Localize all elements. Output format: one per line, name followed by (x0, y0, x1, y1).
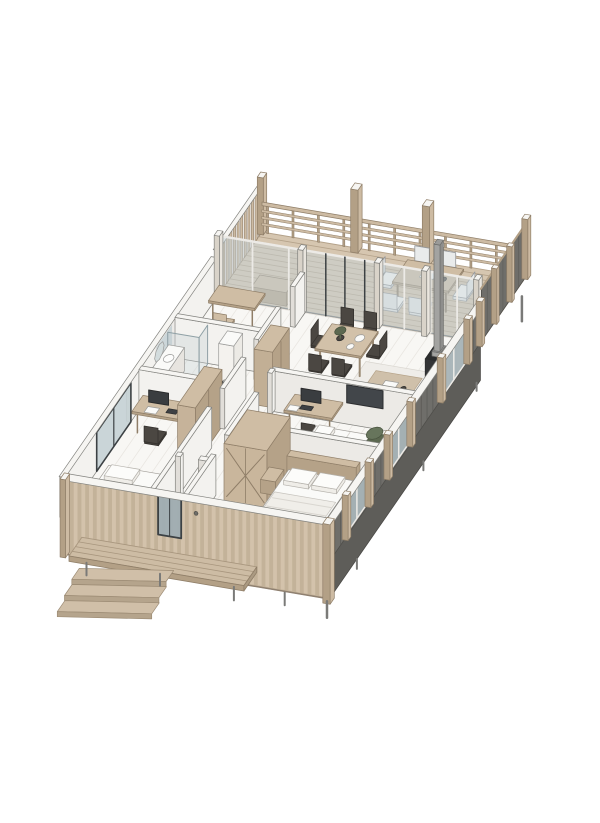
utility-wall (181, 453, 184, 497)
sw-wall-slats (281, 516, 285, 590)
se-wall-post (348, 492, 351, 541)
se-wall-post (470, 316, 473, 365)
se-screen-post (492, 268, 497, 324)
se-screen-post (507, 246, 512, 302)
dining-chair-back (309, 354, 322, 373)
sw-wall-slats (288, 517, 292, 591)
se-wall-post (407, 401, 413, 447)
deck-corner-post (528, 215, 531, 279)
se-wall-post (437, 357, 443, 403)
page (0, 0, 600, 823)
glass-wall-post (427, 266, 430, 336)
roof-column (351, 189, 358, 253)
bedroom-hall-wall (272, 369, 275, 414)
se-screen-slats (487, 280, 488, 333)
sw-corner-post (330, 519, 334, 605)
desk-chair-back (144, 426, 158, 444)
sw-wall-slats (273, 514, 277, 588)
dining-chair-back (364, 311, 377, 330)
sw-wall-slats (319, 522, 323, 596)
sw-wall-slats (74, 481, 78, 555)
sw-corner-post (60, 479, 65, 558)
glass-wall-post (421, 271, 426, 337)
se-wall-post (371, 459, 374, 508)
deck-corner-post (522, 219, 528, 280)
dining-chair-back (332, 358, 345, 377)
sw-wall-slats (258, 512, 262, 586)
roof-column (358, 184, 362, 253)
se-wall-post (443, 354, 446, 403)
se-wall-post (476, 301, 482, 347)
se-wall-post (342, 495, 348, 541)
sw-corner-post (323, 524, 330, 605)
wall-vent (194, 511, 198, 515)
bedroom-hall-wall (268, 373, 273, 414)
dining-chair-back (341, 307, 354, 326)
sw-wall-slats (311, 521, 315, 595)
terrace-screen-slats (251, 198, 253, 248)
sw-wall-slats (304, 520, 308, 594)
se-wall-post (384, 434, 390, 480)
se-wall-post (390, 431, 393, 480)
floor-plan-rendering (0, 0, 600, 823)
se-wall-post (365, 462, 371, 508)
stove-chimney (434, 244, 440, 352)
utility-wall (175, 456, 180, 497)
se-wall-post (482, 298, 485, 347)
glass-wall-post (380, 258, 383, 328)
se-wall-post (413, 398, 416, 447)
roof-column (430, 201, 434, 266)
se-wall-post (464, 319, 470, 365)
hall-wall (220, 388, 225, 429)
hall-wall (290, 286, 295, 327)
sw-wall-slats (296, 518, 300, 592)
outdoor-chair-back (415, 246, 430, 264)
sw-corner-post (65, 474, 69, 558)
sw-wall-slats (265, 513, 269, 587)
se-screen-slats (518, 235, 519, 288)
stove-chimney (440, 240, 443, 351)
se-screen-slats (503, 257, 504, 310)
